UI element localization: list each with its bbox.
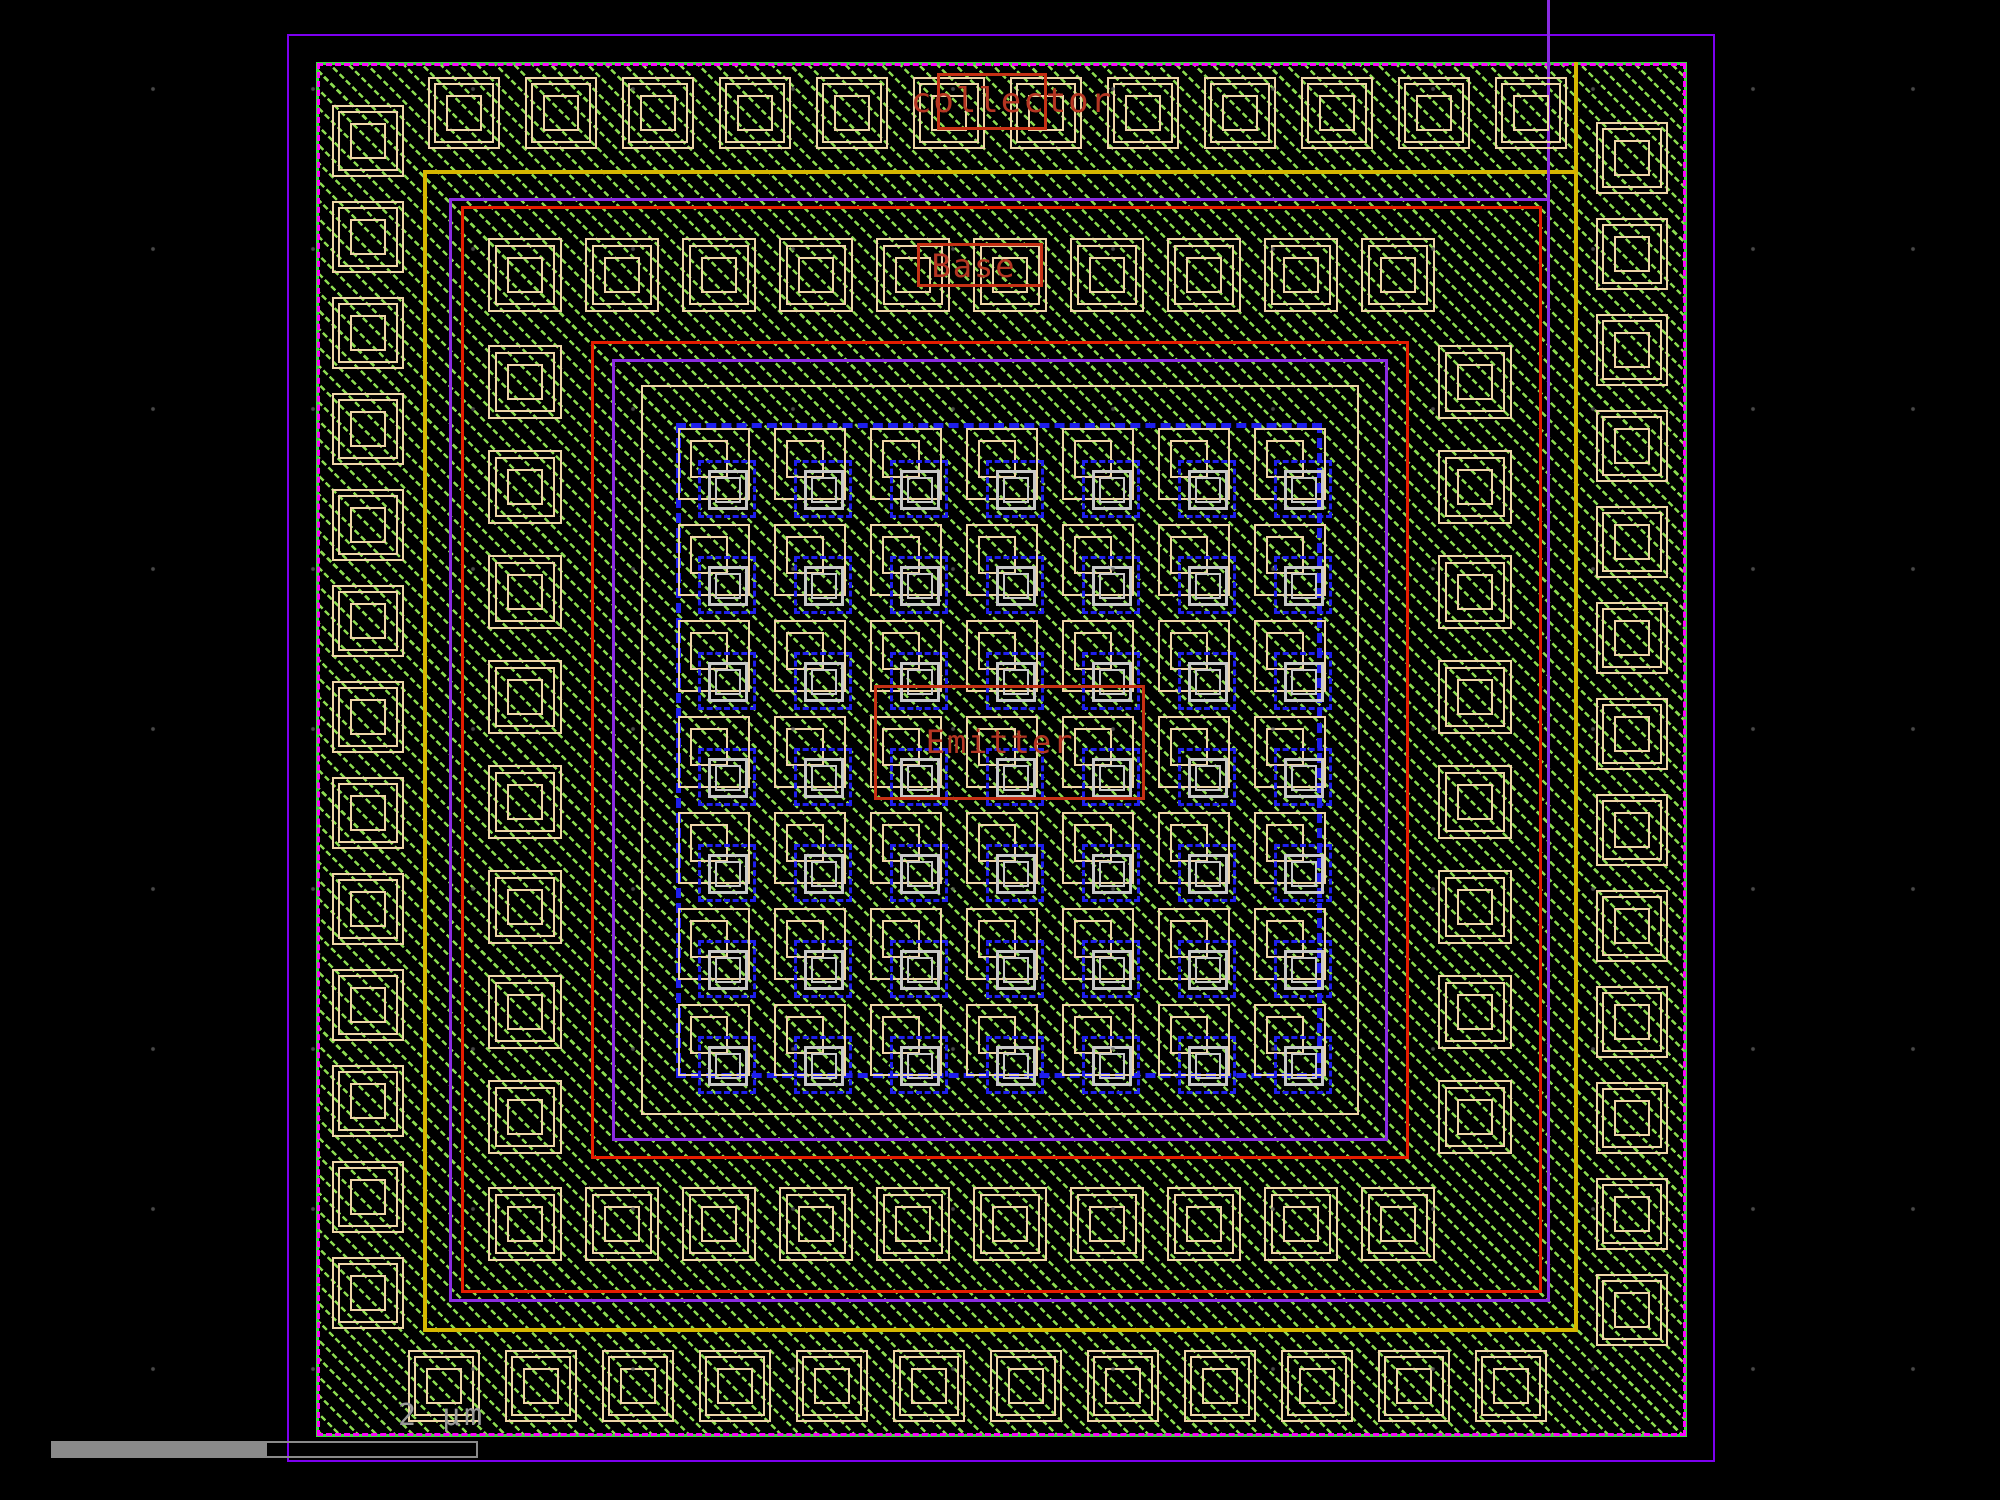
collector-contact-pad: [350, 1083, 386, 1119]
collector-contact-pad: [350, 315, 386, 351]
base-contact-pad: [1457, 469, 1493, 505]
collector-contact-pad: [1416, 95, 1452, 131]
collector-contact-pad: [1614, 1100, 1650, 1136]
collector-contact-pad: [1396, 1368, 1432, 1404]
collector-contact-pad: [911, 1368, 947, 1404]
emitter-cell-part: [1291, 477, 1317, 503]
emitter-cell-part: [811, 573, 837, 599]
base-contact-pad: [1089, 257, 1125, 293]
emitter-cell-part: [1291, 957, 1317, 983]
collector-contact-pad: [350, 411, 386, 447]
collector-contact-pad: [834, 95, 870, 131]
emitter-cell-part: [1099, 861, 1125, 887]
emitter-cell-part: [1291, 669, 1317, 695]
collector-contact-pad: [1614, 524, 1650, 560]
base-contact-pad: [992, 1206, 1028, 1242]
emitter-cell-part: [811, 1053, 837, 1079]
collector-contact-pad: [1614, 1004, 1650, 1040]
base-contact-pad: [1457, 994, 1493, 1030]
base-contact-pad: [1457, 574, 1493, 610]
emitter-cell-part: [811, 957, 837, 983]
emitter-cell-part: [715, 861, 741, 887]
collector-contact-pad: [1614, 908, 1650, 944]
emitter-cell-part: [907, 957, 933, 983]
base-contact-pad: [1283, 257, 1319, 293]
base-contact-pad: [1380, 257, 1416, 293]
collector-contact-pad: [1008, 1368, 1044, 1404]
collector-contact-pad: [1614, 1292, 1650, 1328]
emitter-cell-part: [907, 1053, 933, 1079]
collector-contact-pad: [620, 1368, 656, 1404]
base-contact-pad: [1457, 1099, 1493, 1135]
emitter-cell-part: [1099, 957, 1125, 983]
collector-contact-pad: [350, 1179, 386, 1215]
emitter-cell-part: [811, 669, 837, 695]
collector-contact-pad: [1614, 140, 1650, 176]
emitter-cell-part: [1195, 669, 1221, 695]
collector-contact-pad: [737, 95, 773, 131]
emitter-cell-part: [1003, 1053, 1029, 1079]
collector-contact-pad: [1299, 1368, 1335, 1404]
emitter-cell-part: [1195, 765, 1221, 791]
collector-label: collector: [911, 81, 1113, 121]
base-contact-pad: [1283, 1206, 1319, 1242]
collector-contact-pad: [1513, 95, 1549, 131]
collector-contact-pad: [1614, 1196, 1650, 1232]
emitter-cell-part: [907, 573, 933, 599]
scale-bar-outline-segment: [265, 1441, 478, 1458]
collector-contact-pad: [717, 1368, 753, 1404]
base-label: Base: [931, 247, 1016, 285]
base-contact-pad: [507, 994, 543, 1030]
collector-contact-pad: [1614, 812, 1650, 848]
base-contact-pad: [604, 1206, 640, 1242]
base-contact-pad: [1457, 889, 1493, 925]
collector-contact-pad: [350, 891, 386, 927]
base-contact-pad: [798, 257, 834, 293]
collector-contact-pad: [1614, 332, 1650, 368]
base-contact-pad: [1457, 679, 1493, 715]
emitter-cell-part: [811, 477, 837, 503]
emitter-cell-part: [715, 765, 741, 791]
collector-contact-pad: [640, 95, 676, 131]
emitter-cell-part: [715, 1053, 741, 1079]
collector-contact-pad: [350, 795, 386, 831]
collector-contact-pad: [523, 1368, 559, 1404]
collector-contact-pad: [1614, 428, 1650, 464]
emitter-cell-part: [1099, 573, 1125, 599]
collector-contact-pad: [1319, 95, 1355, 131]
collector-contact-pad: [1222, 95, 1258, 131]
base-contact-pad: [1457, 364, 1493, 400]
emitter-cell-part: [811, 765, 837, 791]
base-contact-pad: [1457, 784, 1493, 820]
base-contact-pad: [895, 1206, 931, 1242]
base-contact-pad: [507, 574, 543, 610]
emitter-cell-part: [1003, 861, 1029, 887]
base-contact-pad: [507, 257, 543, 293]
emitter-cell-part: [1291, 573, 1317, 599]
collector-contact-pad: [814, 1368, 850, 1404]
emitter-cell-part: [1003, 957, 1029, 983]
collector-contact-pad: [1202, 1368, 1238, 1404]
emitter-cell-part: [715, 957, 741, 983]
base-contact-pad: [604, 257, 640, 293]
emitter-cell-part: [1003, 477, 1029, 503]
collector-contact-pad: [543, 95, 579, 131]
collector-contact-pad: [1125, 95, 1161, 131]
collector-contact-pad: [446, 95, 482, 131]
base-contact-pad: [1380, 1206, 1416, 1242]
emitter-cell-part: [715, 669, 741, 695]
emitter-cell-part: [715, 573, 741, 599]
scale-bar-label: 2 µm: [398, 1398, 486, 1433]
yellow-stub-line: [1574, 62, 1578, 170]
emitter-cell-part: [1003, 573, 1029, 599]
base-contact-pad: [507, 1099, 543, 1135]
emitter-cell-part: [1291, 765, 1317, 791]
emitter-cell-part: [907, 861, 933, 887]
base-contact-pad: [1186, 1206, 1222, 1242]
collector-contact-pad: [350, 219, 386, 255]
emitter-cell-part: [1291, 861, 1317, 887]
emitter-cell-part: [1099, 1053, 1125, 1079]
emitter-cell-part: [1099, 477, 1125, 503]
emitter-cell-part: [811, 861, 837, 887]
emitter-cell-part: [715, 477, 741, 503]
collector-contact-pad: [1614, 236, 1650, 272]
collector-contact-pad: [350, 123, 386, 159]
emitter-cell-part: [907, 477, 933, 503]
collector-contact-pad: [350, 603, 386, 639]
base-contact-pad: [507, 889, 543, 925]
base-contact-pad: [507, 1206, 543, 1242]
base-contact-pad: [1186, 257, 1222, 293]
collector-contact-pad: [350, 699, 386, 735]
layout-canvas[interactable]: collector Base Emitter 2 µm: [0, 0, 2000, 1500]
collector-contact-pad: [1614, 620, 1650, 656]
collector-contact-pad: [350, 987, 386, 1023]
emitter-label: Emitter: [926, 723, 1075, 761]
collector-contact-pad: [1493, 1368, 1529, 1404]
base-contact-pad: [1089, 1206, 1125, 1242]
collector-contact-pad: [1105, 1368, 1141, 1404]
base-contact-pad: [798, 1206, 834, 1242]
collector-contact-pad: [350, 1275, 386, 1311]
base-contact-pad: [507, 679, 543, 715]
base-contact-pad: [507, 784, 543, 820]
scale-bar-filled-segment: [51, 1441, 265, 1458]
emitter-cell-part: [1195, 1053, 1221, 1079]
base-contact-pad: [701, 257, 737, 293]
emitter-cell-part: [1195, 957, 1221, 983]
emitter-cell-part: [1195, 861, 1221, 887]
emitter-cell-part: [1195, 573, 1221, 599]
base-contact-pad: [507, 469, 543, 505]
base-contact-pad: [701, 1206, 737, 1242]
emitter-cell-part: [1291, 1053, 1317, 1079]
emitter-cell-part: [1195, 477, 1221, 503]
base-contact-pad: [507, 364, 543, 400]
collector-contact-pad: [1614, 716, 1650, 752]
collector-contact-pad: [350, 507, 386, 543]
